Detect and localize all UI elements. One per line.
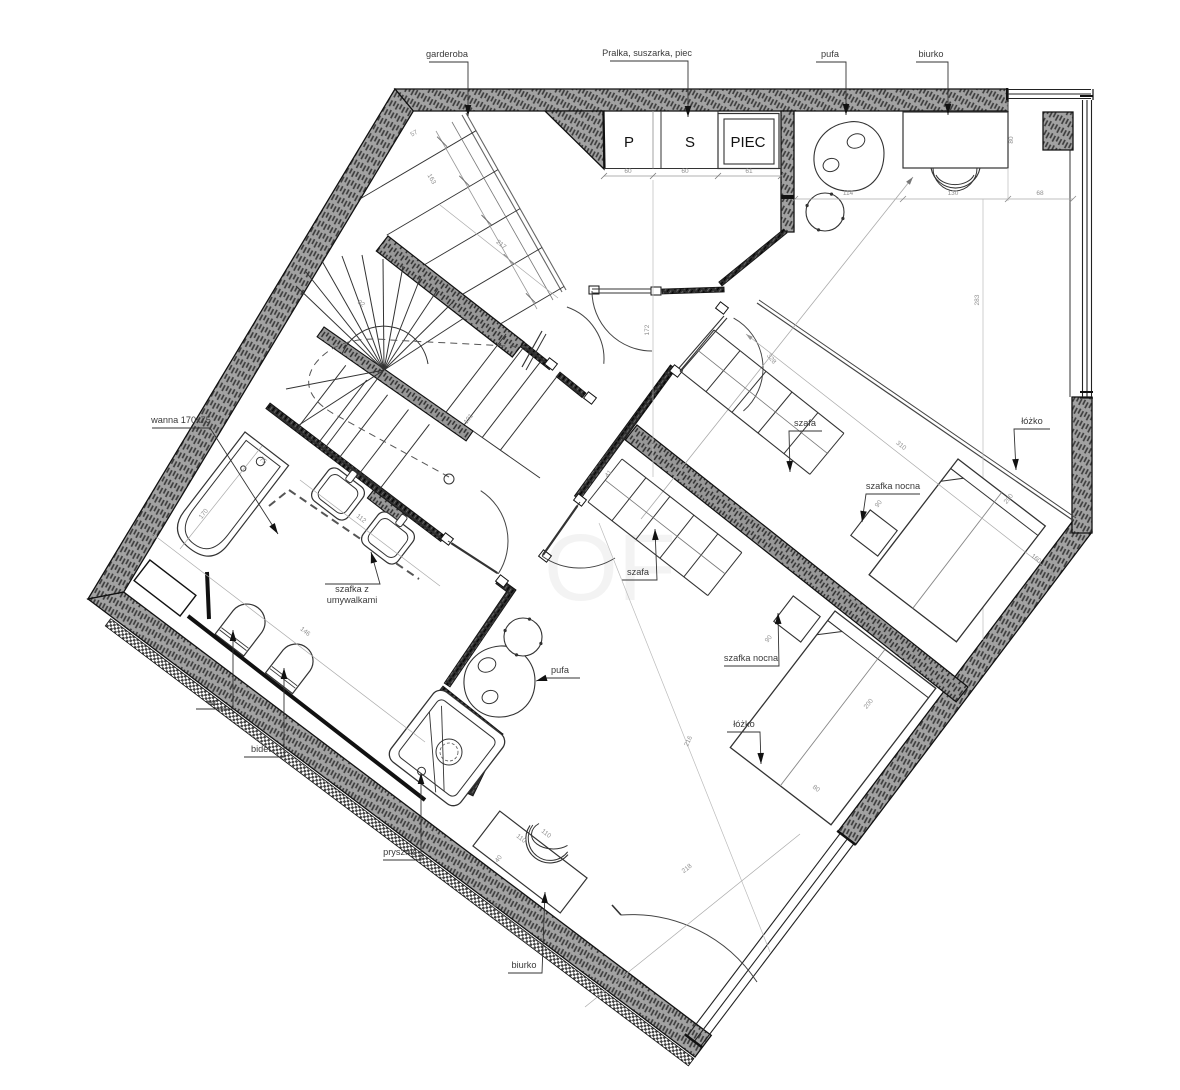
svg-text:PIEC: PIEC [730,134,765,151]
svg-text:biurko: biurko [918,49,943,59]
svg-text:szafka z: szafka z [335,584,369,594]
svg-text:172: 172 [644,324,651,335]
svg-text:P: P [624,134,634,151]
svg-text:garderoba: garderoba [426,49,469,59]
svg-text:pufa: pufa [821,49,840,59]
svg-text:114: 114 [843,190,854,197]
svg-text:61: 61 [745,168,753,175]
svg-text:130: 130 [948,190,959,197]
svg-text:wanna 170x75: wanna 170x75 [150,415,211,425]
svg-text:wc: wc [206,697,219,707]
svg-text:68: 68 [1036,190,1044,197]
svg-text:łóżko: łóżko [1021,416,1042,426]
svg-text:bidet: bidet [251,744,271,754]
svg-text:pufa: pufa [551,665,570,675]
svg-text:szafa: szafa [794,418,817,428]
svg-text:prysznic: prysznic [383,847,417,857]
svg-text:80: 80 [1008,136,1015,144]
svg-text:umywalkami: umywalkami [327,595,378,605]
svg-text:60: 60 [681,168,689,175]
svg-text:60: 60 [624,168,632,175]
svg-text:szafka nocna: szafka nocna [724,653,779,663]
svg-text:biurko: biurko [511,960,536,970]
svg-text:łóżko: łóżko [733,719,754,729]
svg-text:S: S [685,134,695,151]
svg-text:283: 283 [974,294,981,305]
svg-text:szafa: szafa [627,567,650,577]
svg-text:szafka nocna: szafka nocna [866,481,921,491]
svg-text:Pralka, suszarka, piec: Pralka, suszarka, piec [602,48,692,58]
